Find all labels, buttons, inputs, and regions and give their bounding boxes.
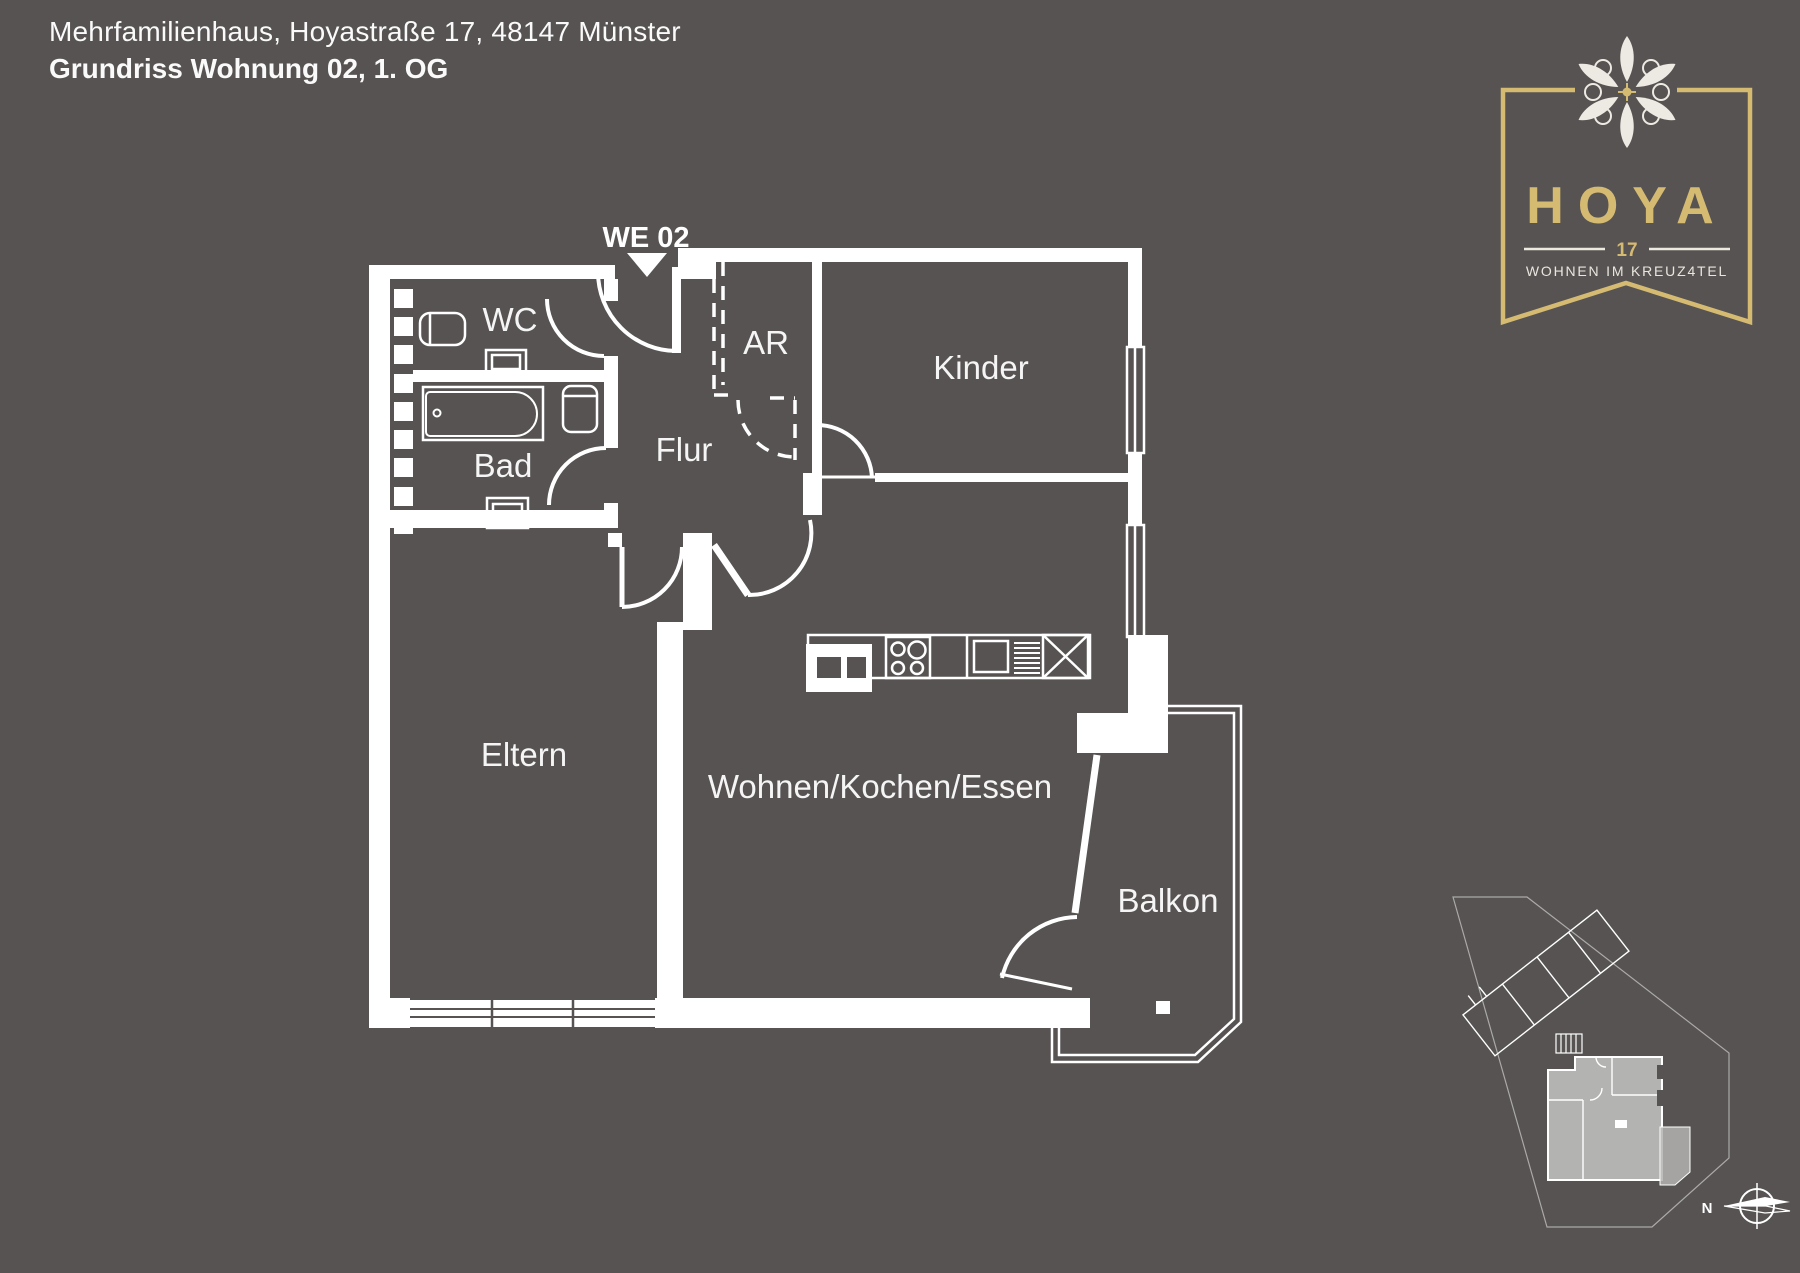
hoya-flower-icon: [1575, 36, 1679, 148]
unit-label: WE 02: [602, 222, 689, 254]
fridge-icon: [1043, 635, 1088, 678]
eltern-door: [622, 547, 682, 607]
logo-number: 17: [1616, 240, 1637, 261]
room-label-kinder: Kinder: [933, 349, 1028, 386]
wc-door-arc: [547, 299, 604, 356]
room-label-bad: Bad: [474, 447, 533, 484]
bad-washbasin-icon: [563, 386, 597, 432]
room-label-eltern: Eltern: [481, 736, 567, 773]
walls: [369, 248, 1168, 1028]
oven-icon: [967, 635, 1040, 678]
entrance-marker-icon: [627, 253, 667, 277]
north-label: N: [1702, 1200, 1713, 1217]
room-label-flur: Flur: [656, 431, 713, 468]
wohnen-door: [714, 520, 811, 595]
bathtub-drain-icon: [434, 410, 441, 417]
bad-door-arc: [549, 448, 606, 505]
room-label-ar: AR: [743, 324, 789, 361]
kinder-door: [817, 425, 875, 478]
room-label-balkon: Balkon: [1118, 882, 1219, 919]
kitchen: [806, 635, 1090, 692]
logo-tagline: WOHNEN IM KREUZ4TEL: [1526, 263, 1728, 279]
minimap: N: [1453, 897, 1790, 1229]
shaft-hatch: [394, 289, 413, 534]
toilet-icon: [420, 313, 465, 345]
room-label-wc: WC: [483, 301, 538, 338]
window-eltern: [410, 1000, 655, 1027]
logo-name: HOYA: [1526, 177, 1727, 235]
compass-icon: [1724, 1183, 1790, 1229]
room-label-wohnen: Wohnen/Kochen/Essen: [708, 768, 1052, 805]
logo-badge: HOYA 17 WOHNEN IM KREUZ4TEL: [1503, 36, 1750, 322]
minimap-staircase: [1556, 1034, 1582, 1053]
cooktop-icon: [886, 637, 930, 678]
floorplan: WE 02: [369, 222, 1241, 1062]
floorplan-canvas: HOYA 17 WOHNEN IM KREUZ4TEL WE 02: [0, 0, 1800, 1273]
window-kinder: [1127, 347, 1144, 453]
balcony-drain-icon: [1156, 1001, 1170, 1014]
window-wohnen-east: [1127, 525, 1144, 637]
minimap-kitchen-dot: [1615, 1120, 1627, 1128]
minimap-building-wing: [1456, 901, 1629, 1056]
minimap-highlight-unit: [1548, 1057, 1690, 1185]
